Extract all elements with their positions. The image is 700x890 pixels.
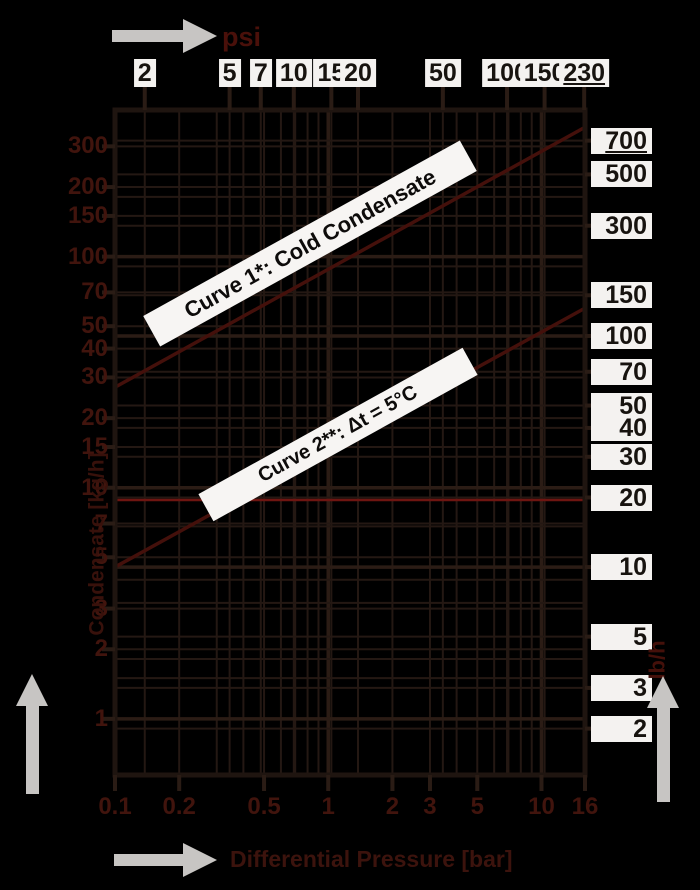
psi-tick-label: 230	[559, 59, 609, 87]
left-axis-title-wrap: Condensate [kg/h]	[6, 398, 52, 690]
kgh-tick-label: 1	[38, 705, 108, 733]
kgh-tick-label: 30	[38, 363, 108, 391]
bottom-axis-title: Differential Pressure [bar]	[230, 846, 512, 873]
bar-tick-label: 0.2	[163, 793, 196, 821]
bar-tick-label: 5	[471, 793, 484, 821]
psi-tick-label: 5	[219, 59, 241, 87]
bar-tick-label: 1	[322, 793, 335, 821]
bar-tick-label: 2	[386, 793, 399, 821]
right-axis-unit: lb/h	[645, 640, 671, 679]
lbh-tick-label: 700	[591, 128, 652, 154]
lbh-tick-label: 300	[591, 213, 652, 239]
kgh-tick-label: 70	[38, 278, 108, 306]
lbh-tick-label: 2	[591, 716, 652, 742]
bar-tick-label: 16	[572, 793, 599, 821]
lbh-tick-label: 100	[591, 323, 652, 349]
bar-tick-label: 0.5	[247, 793, 280, 821]
lbh-tick-label: 150	[591, 282, 652, 308]
bar-tick-label: 10	[528, 793, 555, 821]
kgh-tick-label: 300	[38, 132, 108, 160]
psi-tick-label: 50	[425, 59, 461, 87]
psi-tick-label: 10	[276, 59, 312, 87]
bar-tick-label: 0.1	[98, 793, 131, 821]
top-axis-unit: psi	[222, 22, 261, 53]
lbh-tick-label: 30	[591, 444, 652, 470]
kgh-tick-label: 40	[38, 335, 108, 363]
kgh-tick-label: 100	[38, 243, 108, 271]
left-axis-title: Condensate [kg/h]	[86, 452, 110, 635]
lbh-tick-label: 20	[591, 485, 652, 511]
lbh-tick-label: 10	[591, 554, 652, 580]
lbh-tick-label: 70	[591, 359, 652, 385]
psi-tick-label: 2	[134, 59, 156, 87]
kgh-tick-label: 150	[38, 202, 108, 230]
lbh-tick-label: 500	[591, 161, 652, 187]
psi-tick-label: 20	[340, 59, 376, 87]
kgh-tick-label: 200	[38, 173, 108, 201]
bar-tick-label: 3	[423, 793, 436, 821]
capacity-chart: 2571015205010015023070050030015010070504…	[0, 0, 700, 890]
psi-tick-label: 7	[250, 59, 272, 87]
lbh-tick-label: 40	[591, 415, 652, 441]
